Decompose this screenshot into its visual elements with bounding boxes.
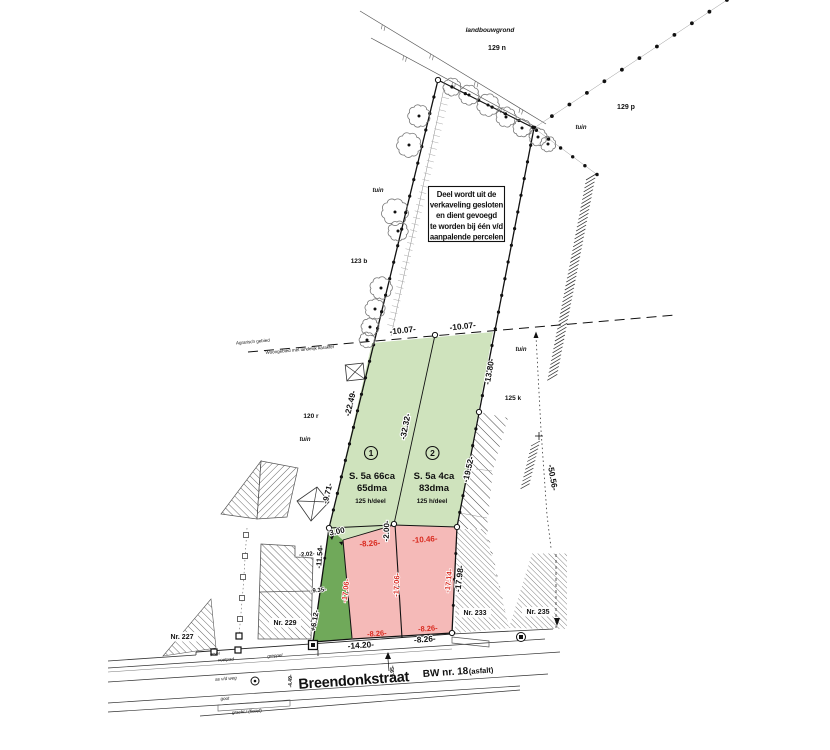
svg-text:Nr. 235: Nr. 235 bbox=[527, 609, 550, 616]
svg-text:-10.46-: -10.46- bbox=[412, 534, 438, 545]
svg-text:tuin: tuin bbox=[576, 125, 587, 131]
svg-text:gevel: gevel bbox=[210, 651, 220, 657]
svg-text:1: 1 bbox=[369, 448, 374, 458]
svg-text:en dient gevoegd: en dient gevoegd bbox=[436, 211, 497, 220]
svg-text:-17.06-: -17.06- bbox=[391, 572, 401, 597]
svg-text:tuin: tuin bbox=[300, 437, 311, 443]
svg-text:83dma: 83dma bbox=[419, 483, 450, 494]
svg-text:-4.49-: -4.49- bbox=[288, 674, 294, 687]
svg-text:S. 5a 4ca: S. 5a 4ca bbox=[414, 471, 455, 482]
svg-text:Nr. 227: Nr. 227 bbox=[171, 634, 194, 641]
svg-text:goot: goot bbox=[220, 696, 230, 702]
svg-text:-2.00-: -2.00- bbox=[382, 520, 392, 542]
svg-text:(asfalt): (asfalt) bbox=[469, 665, 495, 676]
svg-text:120 r: 120 r bbox=[303, 413, 319, 420]
svg-text:Nr. 233: Nr. 233 bbox=[464, 610, 487, 617]
svg-text:verkaveling gesloten: verkaveling gesloten bbox=[430, 201, 504, 210]
svg-text:te worden bij één v/d: te worden bij één v/d bbox=[430, 222, 503, 231]
svg-text:2: 2 bbox=[430, 448, 435, 458]
svg-text:Deel wordt uit de: Deel wordt uit de bbox=[437, 190, 497, 199]
svg-text:aanpalende percelen: aanpalende percelen bbox=[430, 232, 504, 241]
svg-text:tuin: tuin bbox=[373, 188, 384, 194]
svg-text:S. 5a 66ca: S. 5a 66ca bbox=[349, 471, 396, 482]
svg-text:125 h/deel: 125 h/deel bbox=[355, 498, 386, 505]
svg-text:-14.20-: -14.20- bbox=[347, 639, 374, 651]
svg-text:129 n: 129 n bbox=[488, 45, 506, 52]
svg-text:-8.26-: -8.26- bbox=[367, 628, 388, 638]
svg-text:129 p: 129 p bbox=[617, 104, 635, 111]
svg-text:-8.26-: -8.26- bbox=[418, 623, 439, 633]
svg-text:125 h/deel: 125 h/deel bbox=[417, 498, 448, 505]
svg-text:landbouwgrond: landbouwgrond bbox=[466, 27, 516, 34]
svg-text:Nr. 229: Nr. 229 bbox=[274, 620, 297, 627]
svg-text:123 b: 123 b bbox=[351, 258, 368, 265]
svg-text:-8.26-: -8.26- bbox=[359, 538, 381, 548]
svg-text:tuin: tuin bbox=[516, 347, 527, 353]
svg-text:-8.26-: -8.26- bbox=[414, 633, 437, 645]
svg-text:125 k: 125 k bbox=[505, 395, 522, 402]
svg-text:65dma: 65dma bbox=[357, 483, 388, 494]
